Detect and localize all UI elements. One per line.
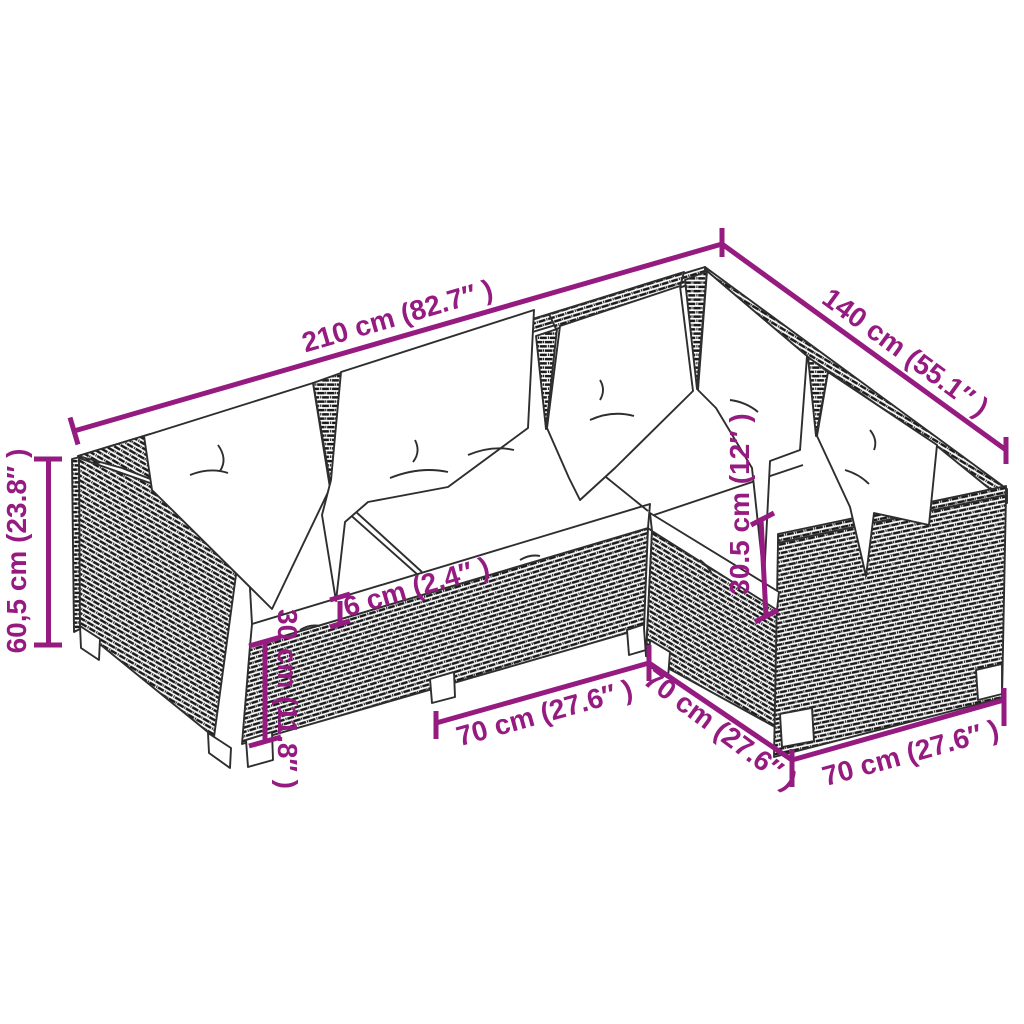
svg-text:30.5 cm (12″ ): 30.5 cm (12″ ) (724, 413, 755, 595)
svg-text:60,5 cm (23.8″ ): 60,5 cm (23.8″ ) (1, 449, 32, 654)
svg-text:30 cm (11.8″ ): 30 cm (11.8″ ) (272, 609, 303, 789)
